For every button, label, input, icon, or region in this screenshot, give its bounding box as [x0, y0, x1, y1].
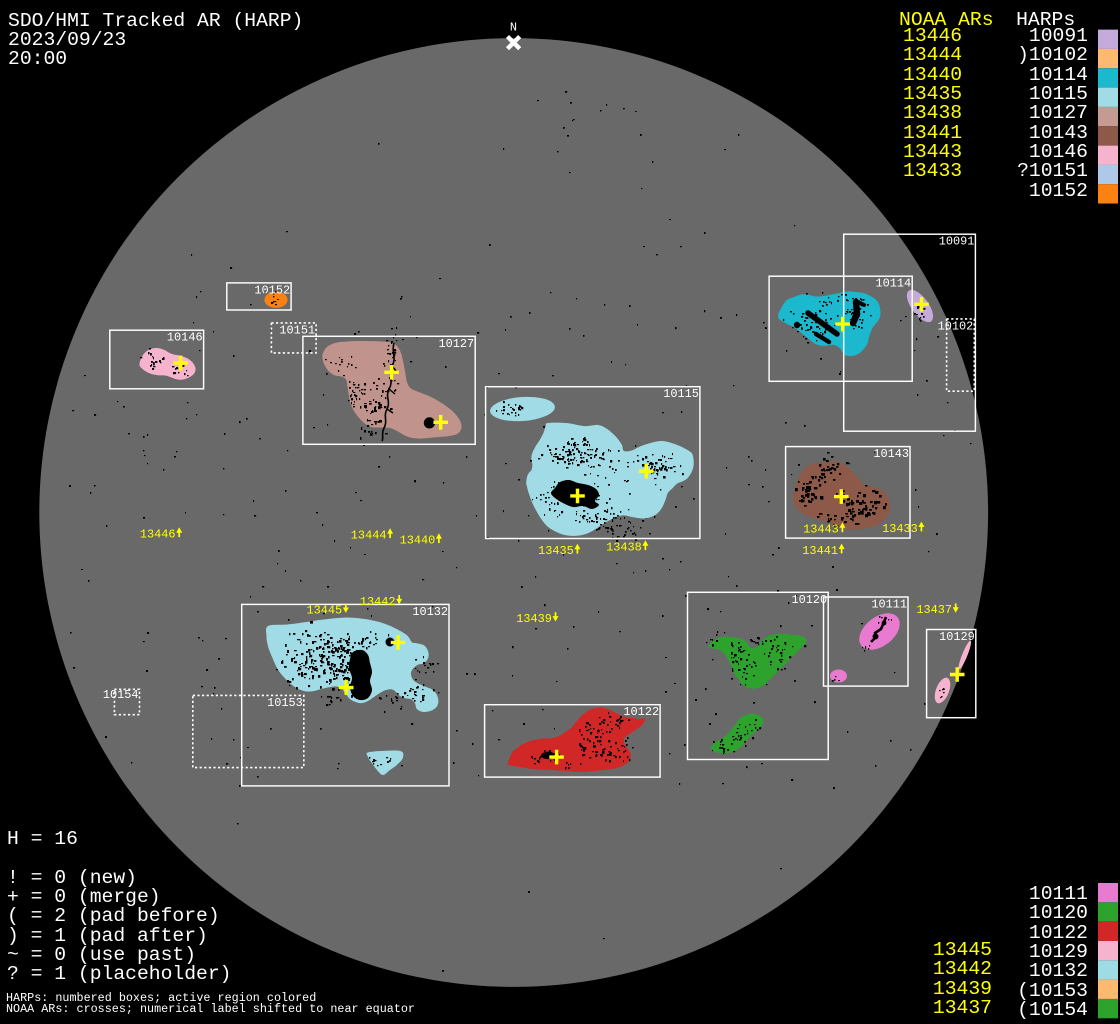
- svg-text:10153: 10153: [267, 696, 303, 710]
- svg-text:N: N: [510, 21, 517, 35]
- svg-text:13446: 13446: [140, 528, 176, 542]
- svg-text:10122: 10122: [623, 705, 659, 719]
- svg-text:13437: 13437: [916, 603, 952, 617]
- svg-text:10143: 10143: [873, 447, 909, 461]
- svg-text:13444: 13444: [351, 529, 387, 543]
- svg-text:10129: 10129: [939, 630, 975, 644]
- svg-text:10120: 10120: [792, 593, 828, 607]
- svg-text:10111: 10111: [871, 598, 907, 612]
- svg-text:13442: 13442: [360, 595, 396, 609]
- svg-text:13438: 13438: [606, 541, 642, 555]
- svg-text:13439: 13439: [516, 612, 552, 626]
- svg-text:10091: 10091: [939, 235, 975, 249]
- svg-text:13435: 13435: [538, 544, 574, 558]
- svg-text:13440: 13440: [400, 534, 436, 548]
- svg-text:13443: 13443: [803, 523, 839, 537]
- svg-text:13433: 13433: [882, 522, 918, 536]
- svg-text:13445: 13445: [307, 603, 343, 617]
- svg-text:10152: 10152: [254, 283, 290, 297]
- svg-text:10151: 10151: [279, 323, 315, 337]
- svg-text:10146: 10146: [167, 331, 203, 345]
- svg-text:13441: 13441: [802, 544, 838, 558]
- svg-text:10132: 10132: [412, 605, 448, 619]
- svg-text:10127: 10127: [439, 337, 475, 351]
- svg-text:10114: 10114: [876, 277, 912, 291]
- svg-text:10115: 10115: [663, 387, 699, 401]
- svg-text:10154: 10154: [103, 688, 139, 702]
- svg-text:10102: 10102: [938, 319, 974, 333]
